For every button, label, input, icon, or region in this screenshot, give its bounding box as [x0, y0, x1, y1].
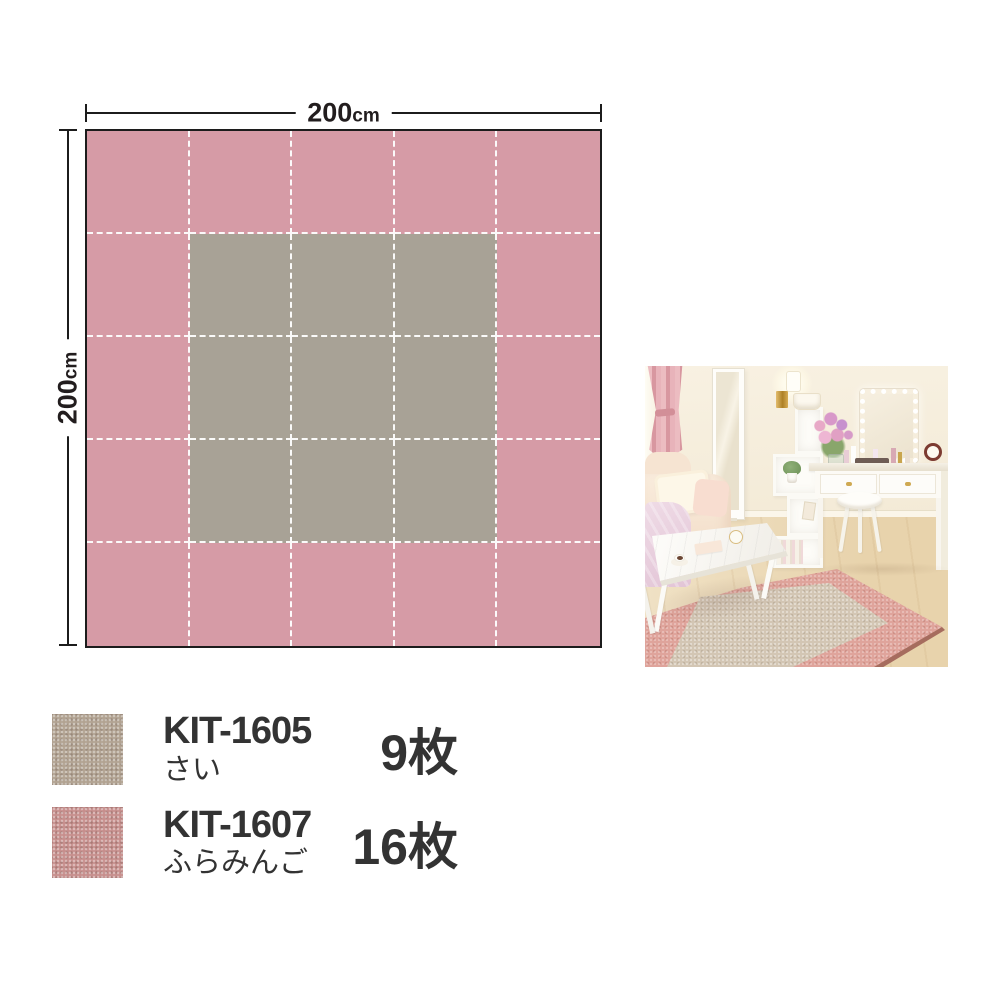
vanity-leg [818, 498, 823, 558]
vanity-side-panel [941, 471, 948, 570]
outer-tile [497, 440, 600, 543]
legend-item: KIT-1607 ふらみんご 16枚 [52, 806, 458, 881]
inner-tile [292, 234, 395, 337]
table-clock [924, 443, 942, 461]
cosmetic-bottle [891, 448, 896, 463]
inner-tile [190, 337, 293, 440]
inner-tile [190, 234, 293, 337]
product-code: KIT-1605 [163, 712, 326, 751]
inner-tile [395, 440, 498, 543]
outer-tile [395, 131, 498, 234]
room-photo [645, 366, 948, 667]
tile-grid [85, 129, 602, 648]
wall-lamp [786, 371, 801, 392]
outer-tile [292, 543, 395, 646]
coffee [677, 556, 683, 560]
height-value: 200 [53, 379, 83, 424]
outer-tile [87, 234, 190, 337]
legend: KIT-1605 さい 9枚 KIT-1607 ふらみんご 16枚 [52, 712, 458, 880]
stool [837, 492, 882, 509]
drawer-knob [846, 482, 852, 486]
product-name: ふらみんご [163, 848, 326, 880]
candle-holder [729, 530, 743, 544]
height-label: 200cm [55, 339, 82, 436]
stool-leg [858, 507, 862, 553]
vanity-shadow [815, 562, 948, 576]
height-unit: cm [61, 351, 82, 378]
inner-tile [190, 440, 293, 543]
wicker-basket [793, 393, 821, 410]
inner-tile [292, 440, 395, 543]
width-value: 200 [307, 98, 352, 128]
dimension-tick [59, 129, 77, 131]
pink-carpet-swatch [52, 807, 123, 878]
width-label: 200cm [295, 100, 392, 127]
outer-tile [497, 337, 600, 440]
plant-pot [787, 473, 797, 483]
outer-tile [292, 131, 395, 234]
height-dimension: 200cm [58, 129, 78, 646]
product-code: KIT-1607 [163, 806, 326, 845]
outer-tile [87, 543, 190, 646]
legend-item-text: KIT-1605 さい [163, 712, 326, 787]
dimension-tick [85, 104, 87, 122]
inner-tile [292, 337, 395, 440]
cosmetic-bottle [898, 452, 902, 463]
outer-tile [190, 543, 293, 646]
dimension-tick [600, 104, 602, 122]
cosmetic-bottle [844, 450, 849, 463]
outer-tile [87, 131, 190, 234]
legend-item-text: KIT-1607 ふらみんご [163, 806, 326, 881]
outer-tile [190, 131, 293, 234]
drawer-knob [905, 482, 911, 486]
outer-tile [87, 440, 190, 543]
product-layout-page: 200cm 200cm KIT-1605 さい 9枚 KIT-1607 ふらみん… [0, 0, 1000, 1000]
product-name: さい [163, 755, 326, 787]
outer-tile [497, 131, 600, 234]
outer-tile [497, 543, 600, 646]
outer-tile [395, 543, 498, 646]
width-unit: cm [352, 106, 379, 127]
photo-frame [802, 501, 816, 520]
outer-tile [87, 337, 190, 440]
inner-tile [395, 337, 498, 440]
beige-carpet-swatch [52, 714, 123, 785]
legend-item: KIT-1605 さい 9枚 [52, 712, 458, 787]
cosmetic-bottle [905, 450, 910, 463]
gold-canister [776, 391, 788, 408]
inner-tile [395, 234, 498, 337]
pink-pillow [692, 478, 730, 517]
dimension-tick [59, 644, 77, 646]
width-dimension: 200cm [85, 103, 602, 123]
vanity-desk-top [809, 463, 948, 471]
tile-count: 16枚 [326, 807, 458, 879]
outer-tile [497, 234, 600, 337]
tile-count: 9枚 [326, 713, 458, 785]
